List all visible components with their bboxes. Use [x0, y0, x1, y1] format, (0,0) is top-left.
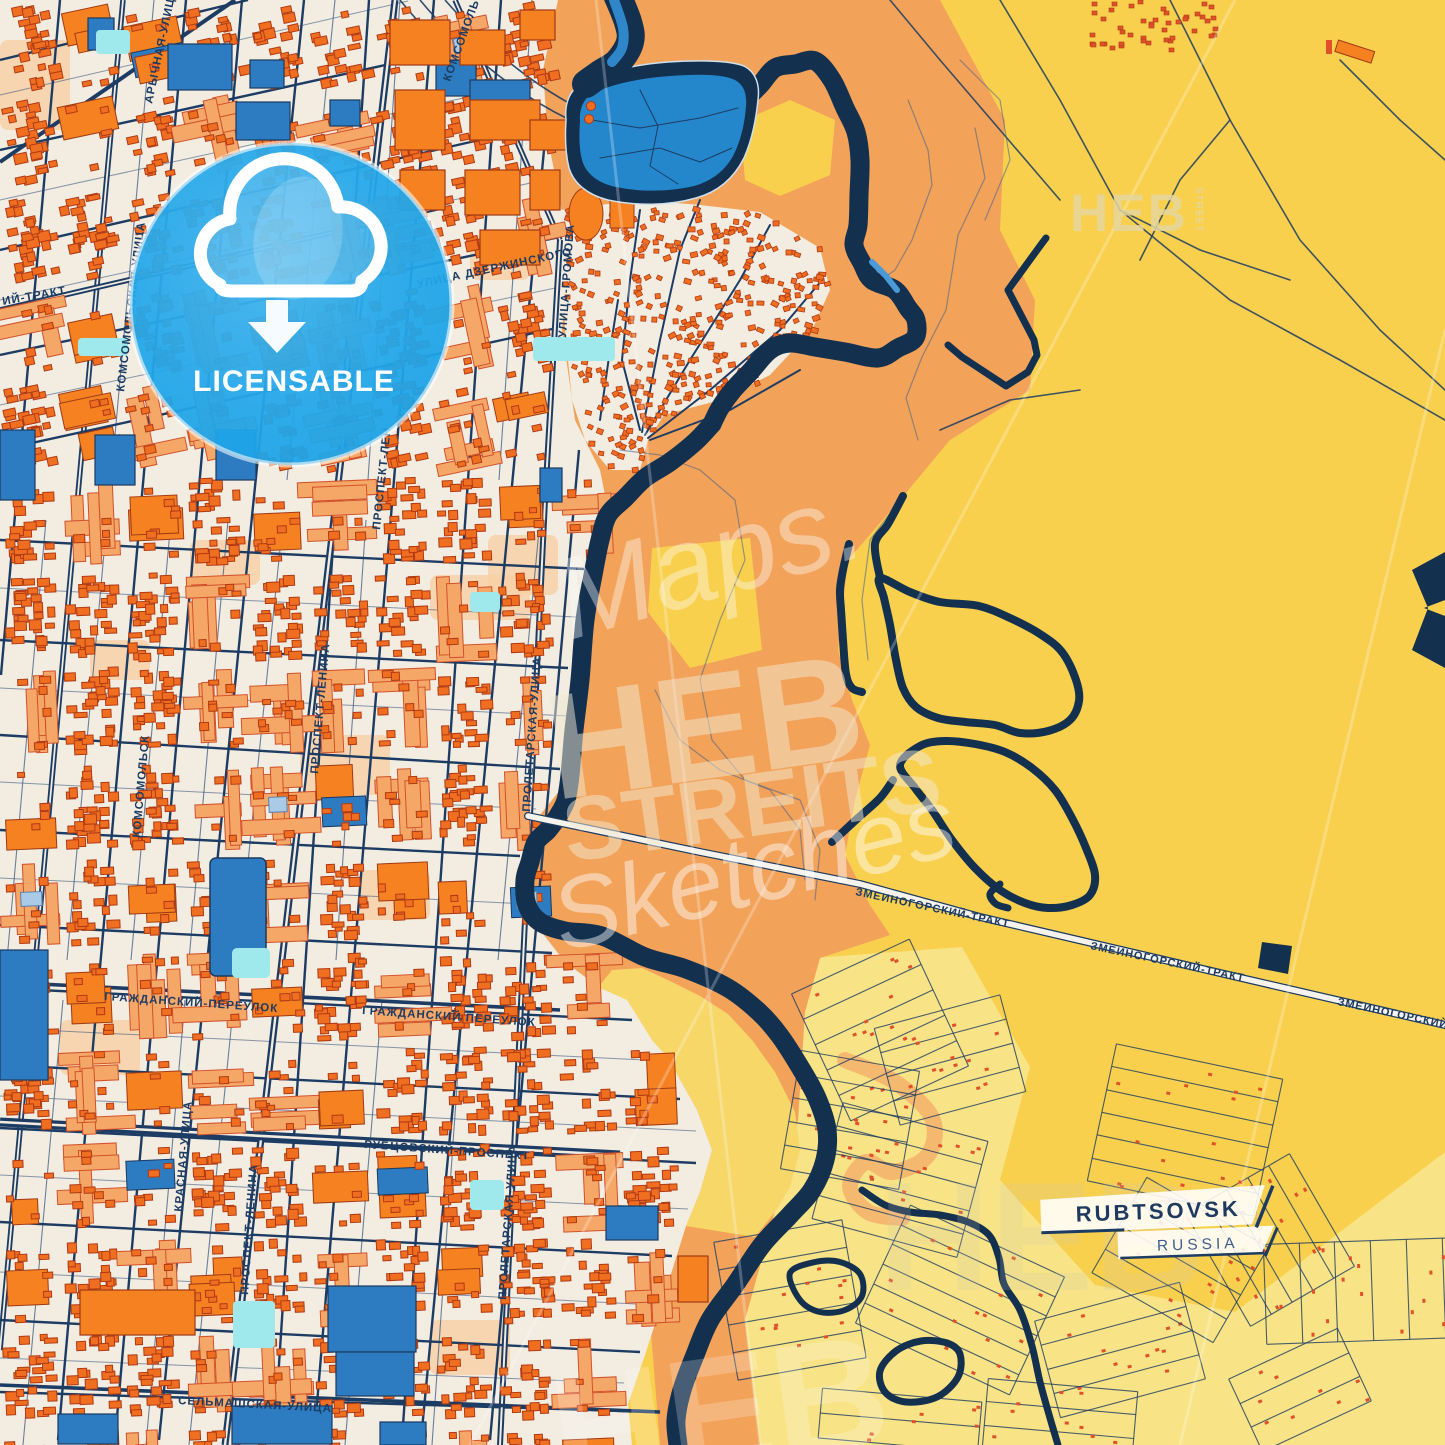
svg-text:LICENSABLE: LICENSABLE	[193, 365, 395, 398]
svg-text:HEB: HEB	[1070, 184, 1188, 243]
svg-text:RUSSIA: RUSSIA	[1157, 1235, 1239, 1255]
svg-text:STREET: STREET	[1193, 187, 1204, 232]
